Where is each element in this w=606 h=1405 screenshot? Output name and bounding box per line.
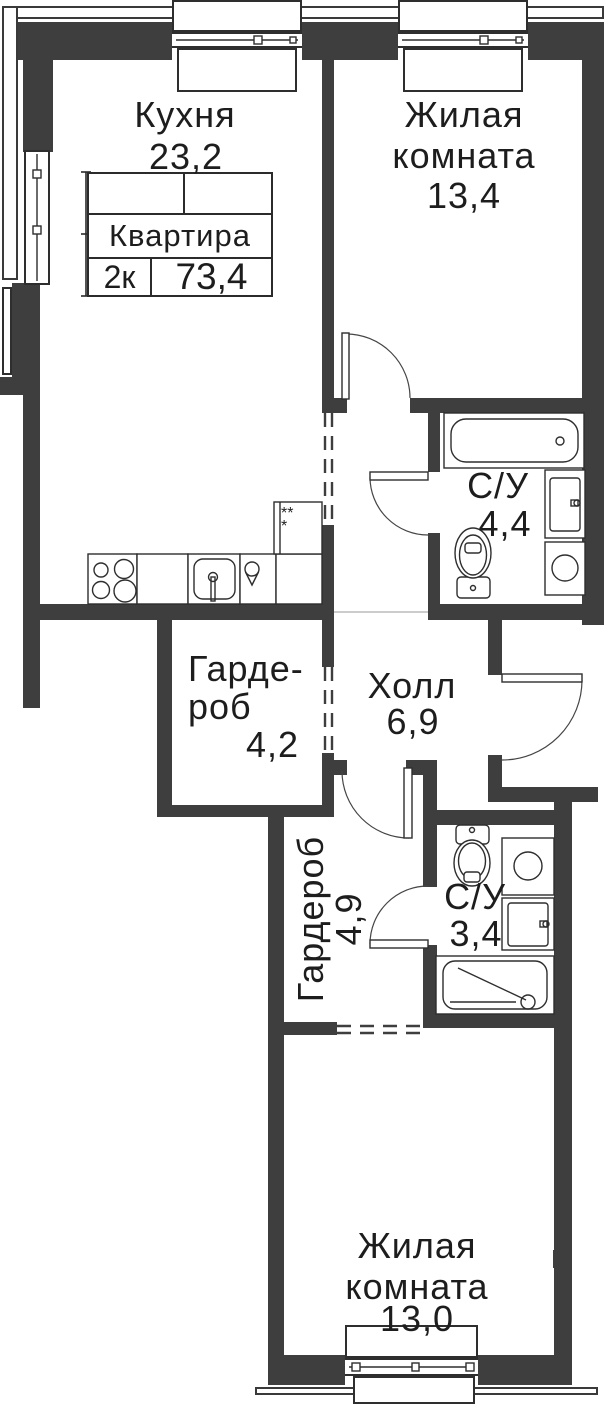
room-label-wardrobe2: Гардероб 4,9 — [292, 819, 368, 1019]
room-label-living1-line1: Жилая — [405, 97, 524, 133]
washing-machine-icon — [545, 542, 585, 595]
bathroom2-door — [370, 886, 428, 948]
room-label-bath2: С/У — [444, 879, 506, 915]
room-area-wardrobe2: 4,9 — [330, 819, 368, 1019]
living1-door — [342, 333, 410, 399]
shower-tray-icon — [436, 956, 554, 1014]
floor-plan: Квартира 2к 73,4 Кухня 23,2 Жилая комнат… — [0, 0, 606, 1405]
bathroom1-sink-icon — [545, 470, 585, 538]
room-label-hall: Холл — [368, 668, 457, 704]
title-block-cell — [185, 174, 271, 213]
shaft-symbol: *** — [281, 507, 294, 533]
room-area-wardrobe1: 4,2 — [188, 726, 304, 764]
room-area-hall: 6,9 — [386, 704, 439, 740]
room-area-bath1: 4,4 — [478, 506, 531, 542]
room-label-kitchen: Кухня — [134, 97, 235, 133]
room-area-living2: 13,0 — [380, 1301, 454, 1337]
room-label-wardrobe1-line1: Гарде- — [188, 650, 304, 688]
washing-machine-icon — [502, 838, 554, 895]
room-label-wardrobe1-line2: роб — [188, 688, 304, 726]
apartment-area: 73,4 — [152, 259, 271, 295]
apartment-type: 2к — [89, 259, 152, 295]
room-label-wardrobe1: Гарде- роб 4,2 — [188, 650, 304, 764]
title-block-row-values: 2к 73,4 — [89, 259, 271, 295]
bathroom1-door — [370, 472, 428, 535]
title-block: Квартира 2к 73,4 — [87, 172, 273, 297]
title-block-row-empty — [89, 174, 271, 215]
title-block-name: Квартира — [89, 215, 271, 259]
room-label-bath1: С/У — [467, 468, 529, 504]
room-area-living1: 13,4 — [427, 178, 501, 214]
title-block-cell — [89, 174, 185, 213]
bathroom2-sink-icon — [502, 898, 554, 950]
room-area-kitchen: 23,2 — [149, 139, 223, 175]
entrance-door — [502, 674, 582, 760]
room-label-living2-line1: Жилая — [358, 1228, 477, 1264]
room-area-bath2: 3,4 — [449, 916, 502, 952]
bathtub-icon — [444, 413, 584, 468]
room-label-living1-line2: комната — [392, 138, 535, 174]
room-label-wardrobe2-name: Гардероб — [292, 819, 330, 1019]
